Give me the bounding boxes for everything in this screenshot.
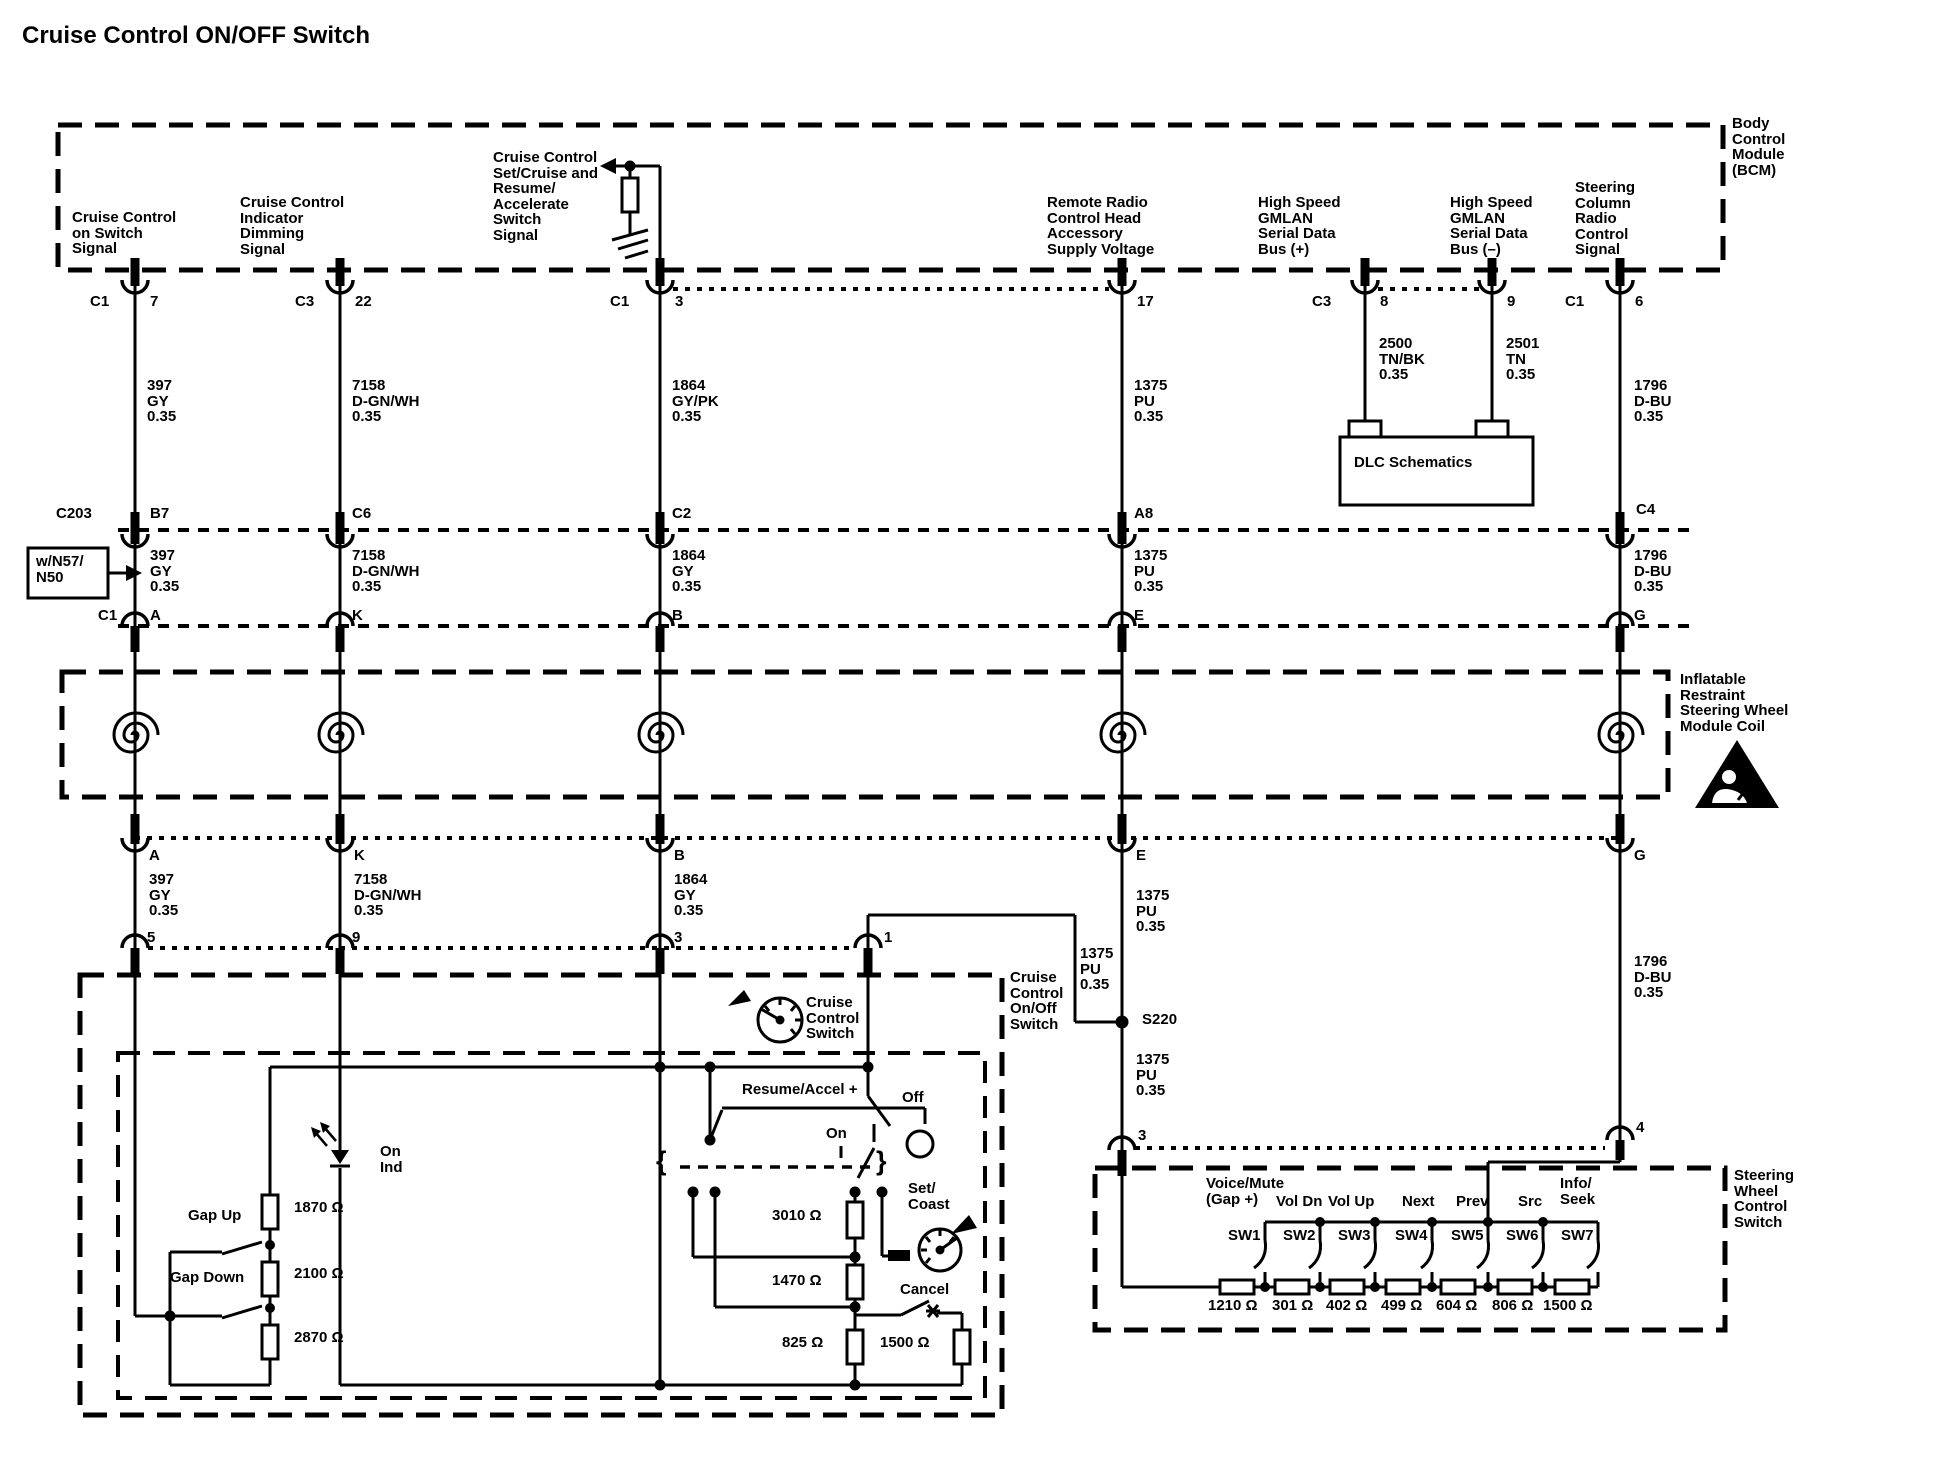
gap-up-switch	[222, 1242, 262, 1254]
resistor-825	[847, 1330, 863, 1364]
coil-box	[62, 672, 1668, 797]
on-indicator-led-icon	[311, 1122, 350, 1166]
resistor-1500	[954, 1330, 970, 1364]
sw-switches	[1254, 1222, 1599, 1268]
steering-switch-internals	[1122, 1217, 1599, 1294]
pointer-arrow-icon	[728, 990, 751, 1006]
off-contact-icon	[907, 1131, 933, 1157]
left-arrow-icon	[600, 158, 616, 174]
on-switch-arm	[858, 1148, 874, 1178]
pullup-resistor	[622, 178, 638, 212]
set-coast-gauge-icon	[919, 1215, 977, 1271]
cruise-gauge-icon	[728, 990, 802, 1042]
gap-down-switch	[222, 1306, 262, 1318]
resistor-499	[1386, 1280, 1420, 1294]
steering-wheel-switch-box	[1095, 1168, 1725, 1330]
resistor-3010	[847, 1202, 863, 1238]
airbag-warning-icon	[1695, 740, 1779, 808]
resistor-2870	[262, 1325, 278, 1359]
resistor-806	[1498, 1280, 1532, 1294]
ground-icon	[612, 230, 648, 258]
resistor-1500b	[1555, 1280, 1589, 1294]
resume-switch-arm	[710, 1110, 722, 1140]
setcruise-stub	[600, 158, 660, 258]
coil-lower-connectors	[122, 814, 1633, 851]
dlc-box	[1340, 421, 1533, 505]
resistor-2100	[262, 1262, 278, 1296]
resistor-604	[1441, 1280, 1475, 1294]
s220-branch	[868, 915, 1129, 1096]
pointer-arrow-icon	[951, 1215, 977, 1234]
schematic-page: Cruise Control ON/OFF Switch Body Contro…	[0, 0, 1946, 1472]
cancel-contact-icon	[926, 1305, 940, 1317]
coil-c1-connectors	[122, 613, 1633, 652]
cruise-switch-internals	[165, 990, 978, 1391]
page-title: Cruise Control ON/OFF Switch	[22, 22, 370, 50]
resistor-1470	[847, 1265, 863, 1299]
resistor-402	[1330, 1280, 1364, 1294]
s220-splice	[1116, 1016, 1129, 1029]
switch-entry-connectors	[122, 935, 1633, 1176]
resistor-301	[1275, 1280, 1309, 1294]
n57-box	[28, 548, 142, 598]
onoff-switch-arm	[868, 1096, 890, 1126]
bcm-box	[58, 125, 1723, 270]
cancel-switch-arm	[901, 1301, 929, 1315]
wiring-diagram	[0, 0, 1946, 1472]
resistor-1870	[262, 1195, 278, 1229]
steering-coil-icons	[114, 713, 1643, 752]
set-coast-contact	[888, 1250, 910, 1261]
wires	[135, 166, 1620, 1385]
resistor-1210	[1220, 1280, 1254, 1294]
